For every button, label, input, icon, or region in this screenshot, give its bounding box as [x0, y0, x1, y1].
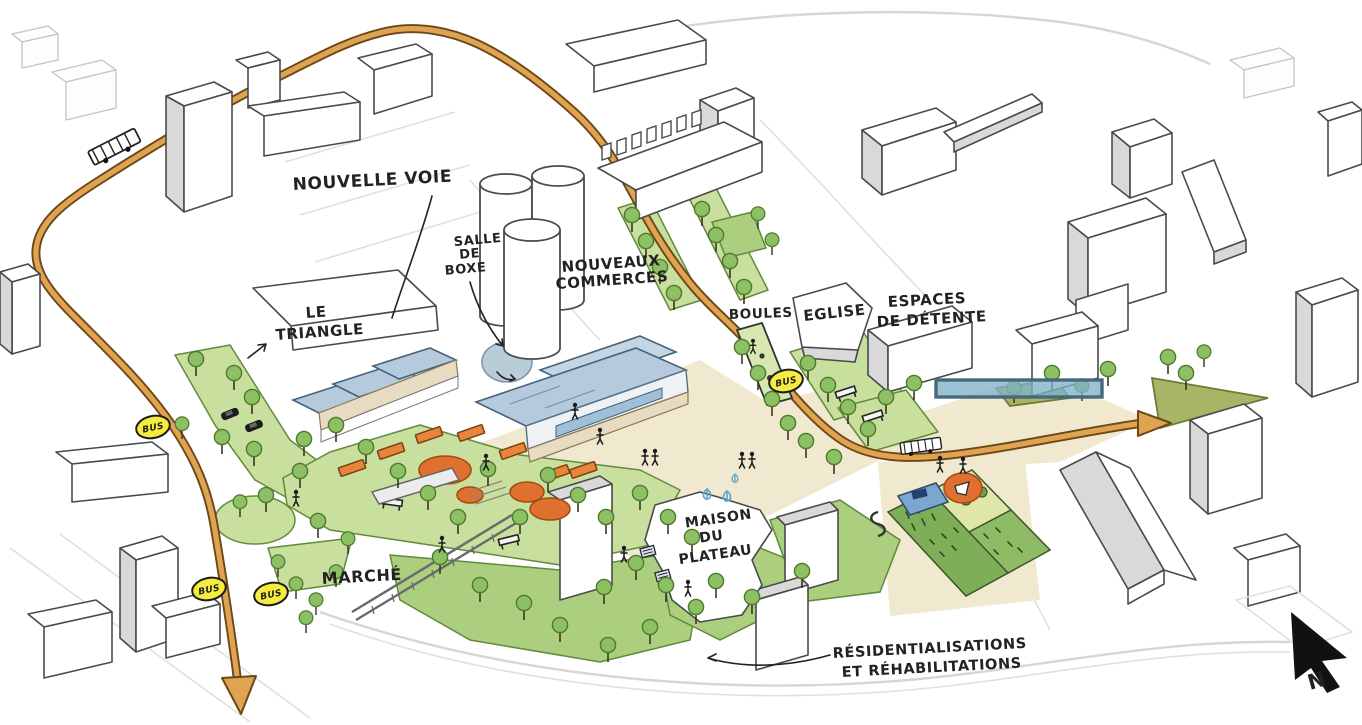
svg-text:DU: DU: [698, 527, 724, 546]
label-nouveaux-commerces: NOUVEAUX COMMERCES: [555, 251, 669, 293]
triangle-arrow: [248, 344, 266, 358]
label-nouvelle-voie: NOUVELLE VOIE: [292, 167, 452, 195]
highlight-rectangle[interactable]: [936, 380, 1102, 397]
label-espaces-de-detente: ESPACES DE DÉTENTE: [876, 289, 987, 331]
label-boules: BOULES: [729, 305, 793, 323]
label-residentialisations: RÉSIDENTIALISATIONS ET RÉHABILITATIONS: [832, 635, 1027, 681]
svg-text:LE: LE: [305, 303, 327, 322]
masterplan-sketch: NOUVELLE VOIE SALLE DE BOXE NOUVEAUX COM…: [0, 0, 1362, 725]
label-marche: MARCHÉ: [321, 565, 402, 588]
route-arrow-south: [222, 676, 256, 714]
